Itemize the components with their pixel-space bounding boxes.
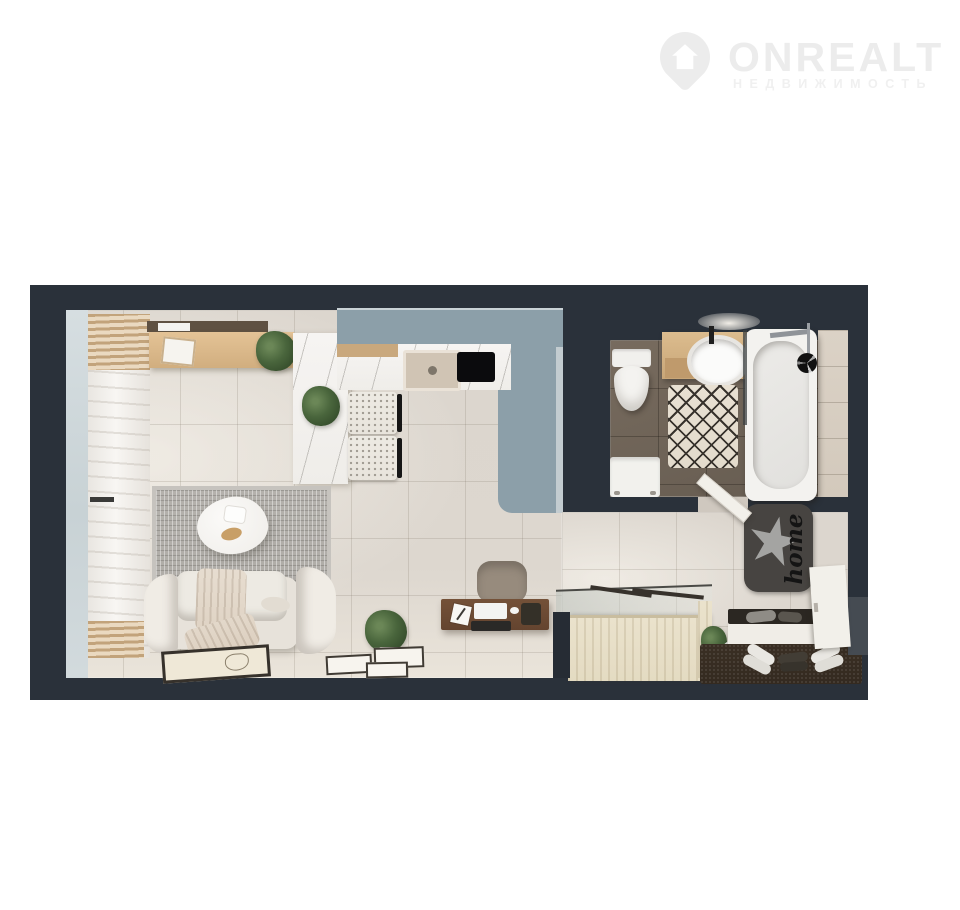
counter-wood-board xyxy=(337,344,398,357)
tablet xyxy=(521,603,541,625)
entry-door-opening xyxy=(848,597,868,655)
monitor xyxy=(471,621,511,631)
kitchen-upper-cabinets xyxy=(337,308,563,349)
plant-sideboard xyxy=(256,331,296,371)
door-handle xyxy=(814,603,819,612)
window xyxy=(66,310,88,678)
bathroom-side-tiles xyxy=(818,330,848,497)
sofa-arm-left xyxy=(144,574,178,654)
washing-machine xyxy=(610,457,660,497)
floor-plan-screenshot: ONREALT НЕДВИЖИМОСТЬ xyxy=(0,0,960,910)
curtain-bottom-slats xyxy=(88,621,144,658)
vanity-mirror-light xyxy=(698,313,760,330)
bath-rug xyxy=(668,385,738,468)
shower-head xyxy=(797,353,817,373)
toilet-tank xyxy=(612,349,651,367)
sofa-arm-right xyxy=(296,567,336,654)
bar-chair-2 xyxy=(348,436,397,480)
bar-chair-1 xyxy=(348,392,397,434)
kitchen-sink xyxy=(403,350,461,391)
window-handle xyxy=(90,497,114,502)
desk-chair xyxy=(477,561,527,603)
table-cup xyxy=(223,505,247,525)
curtain-top-slats xyxy=(88,314,150,370)
mouse xyxy=(510,607,519,614)
partition-wall-stub xyxy=(553,612,570,678)
shoes-on-bench-2 xyxy=(778,611,803,623)
brand-tagline: НЕДВИЖИМОСТЬ xyxy=(733,77,933,91)
shower-pipe xyxy=(807,323,810,355)
dark-shoes-b xyxy=(780,661,809,672)
home-mat-text: home xyxy=(781,512,805,586)
cabinet-side-edge xyxy=(556,347,563,513)
shelf-item xyxy=(158,323,190,331)
leaning-frame-3 xyxy=(366,662,408,679)
shower-glass-screen xyxy=(743,330,747,425)
apartment-plan: home xyxy=(30,285,868,700)
cooktop xyxy=(457,352,495,382)
bath-faucet xyxy=(709,326,714,344)
picture-sketch xyxy=(224,653,249,672)
brand-logo-text: ONREALT xyxy=(728,34,944,81)
home-mat: home xyxy=(744,504,813,592)
location-pin-house-icon xyxy=(660,32,712,84)
laptop xyxy=(474,603,507,619)
plant-floor xyxy=(365,610,407,652)
bath-sink xyxy=(687,335,749,387)
sink-drain xyxy=(428,366,437,375)
entry-door-leaf xyxy=(809,565,851,649)
wardrobe xyxy=(568,615,709,681)
sideboard-picture xyxy=(161,336,197,366)
plant-island xyxy=(302,386,340,426)
